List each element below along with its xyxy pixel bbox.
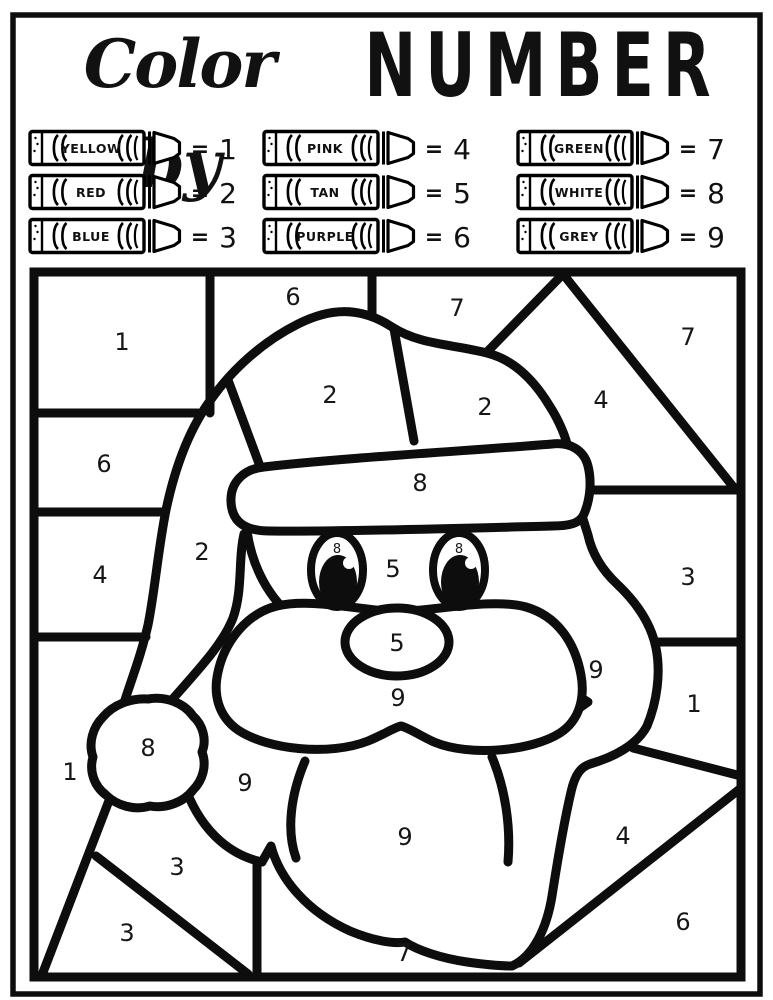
legend-item-purple: PURPLE = 6 (262, 216, 492, 260)
region-label-right-upper: 3 (680, 563, 695, 591)
region-label-beard-chin: 9 (397, 823, 412, 851)
region-label-mustache: 9 (390, 684, 405, 712)
legend-item-yellow: YELLOW = 1 (28, 128, 258, 172)
legend-item-blue: BLUE = 3 (28, 216, 258, 260)
title-script: Color by (34, 14, 324, 119)
equals-sign: = (679, 181, 697, 206)
legend-number: 7 (707, 133, 725, 166)
region-label-beard-left: 9 (237, 769, 252, 797)
region-label-beard-curl: 9 (588, 656, 603, 684)
region-label-right-eye: 8 (455, 542, 463, 557)
region-label-right-mid: 1 (686, 690, 701, 718)
legend-column-2: PINK = 4 TAN = 5 PURPLE = 6 (262, 128, 492, 260)
equals-sign: = (425, 181, 443, 206)
crayon-label: PURPLE (296, 229, 354, 244)
region-label-hat-band: 8 (412, 469, 427, 497)
region-label-right-diag-band: 4 (615, 822, 630, 850)
equals-sign: = (191, 225, 209, 250)
legend-number: 2 (219, 177, 237, 210)
region-label-bottom-left-upper: 3 (169, 853, 184, 881)
region-label-top-left: 1 (114, 328, 129, 356)
region-label-face: 5 (385, 555, 400, 583)
legend-column-1: YELLOW = 1 RED = 2 BLUE = 3 (28, 128, 258, 260)
region-label-bottom-right: 6 (675, 908, 690, 936)
crayon-label: PINK (307, 141, 344, 156)
legend-item-green: GREEN = 7 (516, 128, 746, 172)
legend-item-pink: PINK = 4 (262, 128, 492, 172)
legend-item-grey: GREY = 9 (516, 216, 746, 260)
equals-sign: = (425, 225, 443, 250)
legend-item-white: WHITE = 8 (516, 172, 746, 216)
equals-sign: = (425, 137, 443, 162)
region-label-top-right: 7 (680, 323, 695, 351)
region-label-left-upper: 6 (96, 450, 111, 478)
legend-number: 9 (707, 221, 725, 254)
region-label-nose: 5 (389, 629, 404, 657)
region-label-bottom-left-lower: 3 (119, 919, 134, 947)
worksheet-page: 1646774222831469189335599788 Color by NU… (0, 0, 773, 1000)
region-label-left-eye: 8 (333, 542, 341, 557)
legend-item-red: RED = 2 (28, 172, 258, 216)
region-label-hat-tail: 2 (194, 538, 209, 566)
region-label-top-middle: 6 (285, 283, 300, 311)
legend-number: 8 (707, 177, 725, 210)
region-label-top-center: 7 (449, 294, 464, 322)
legend-number: 5 (453, 177, 471, 210)
legend-number: 6 (453, 221, 471, 254)
region-label-hat-dome-right: 2 (477, 393, 492, 421)
equals-sign: = (191, 181, 209, 206)
crayon-label: YELLOW (60, 141, 122, 156)
legend-number: 4 (453, 133, 471, 166)
legend-item-tan: TAN = 5 (262, 172, 492, 216)
legend-number: 1 (219, 133, 237, 166)
legend-column-3: GREEN = 7 WHITE = 8 GREY = 9 (516, 128, 746, 260)
equals-sign: = (191, 137, 209, 162)
region-label-hat-dome-left: 2 (322, 381, 337, 409)
region-label-left-lower: 1 (62, 758, 77, 786)
crayon-label: BLUE (72, 229, 110, 244)
region-label-bottom-center: 7 (396, 939, 411, 967)
crayon-label: RED (76, 185, 106, 200)
region-label-left-mid: 4 (92, 561, 107, 589)
crayon-label: GREY (559, 229, 599, 244)
crayon-label: WHITE (555, 185, 603, 200)
region-label-pom-pom: 8 (140, 734, 155, 762)
equals-sign: = (679, 137, 697, 162)
crayon-label: TAN (310, 185, 339, 200)
legend-number: 3 (219, 221, 237, 254)
region-label-hat-right-triangle: 4 (593, 386, 608, 414)
equals-sign: = (679, 225, 697, 250)
crayon-label: GREEN (554, 141, 604, 156)
